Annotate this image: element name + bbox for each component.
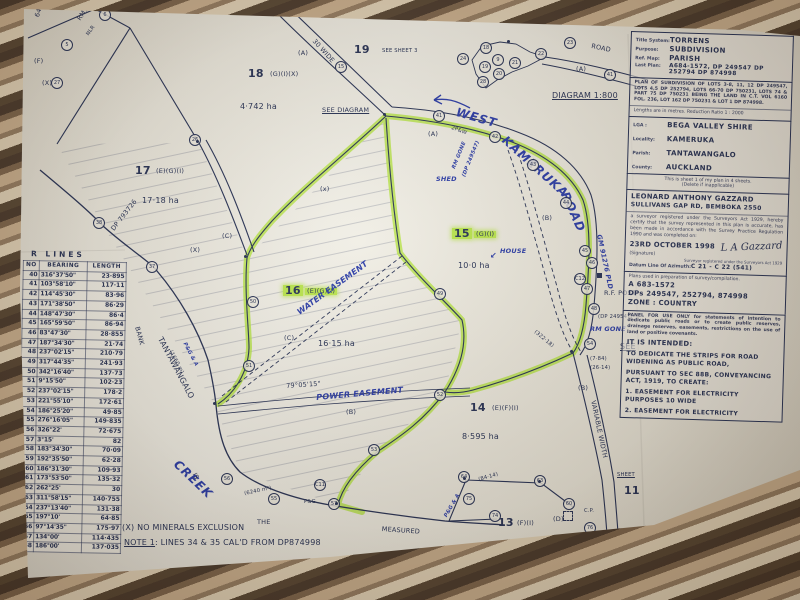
map-label: 30 WIDE [311, 38, 335, 64]
lga-value: BEGA VALLEY SHIRE [667, 121, 753, 132]
power-easement-annotation: POWER EASEMENT [316, 386, 404, 402]
surveyor-panel: LEONARD ANTHONY GAZZARD SULLIVANS GAP RD… [624, 189, 789, 276]
title-block: Title System:TORRENS Purpose:SUBDIVISION… [620, 31, 794, 423]
survey-point-51: 51 [243, 360, 255, 372]
survey-point-18: 18 [480, 42, 492, 54]
intended-4: 2. EASEMENT FOR ELECTRICITY [625, 407, 778, 420]
title-panel: Title System:TORRENS Purpose:SUBDIVISION… [630, 31, 794, 82]
map-label: (7·84) [590, 357, 607, 362]
map-label: RM GONE [590, 326, 626, 333]
survey-point-41: 41 [433, 110, 445, 122]
plan-description-panel: PLAN OF SUBDIVISION OF LOTS 3-8, 11, 12 … [628, 77, 792, 120]
junction-dot [570, 350, 573, 353]
table-row: 68186°00'137·035 [17, 542, 120, 554]
survey-point-26: 26 [189, 134, 201, 146]
map-label: : LINES 34 & 35 CAL'D FROM DP874998 [155, 539, 321, 547]
map-label: (G)(I) [474, 231, 496, 238]
survey-point-50: 50 [247, 296, 259, 308]
map-label: (x) [320, 186, 330, 193]
map-label: RM1 [76, 6, 90, 22]
map-label: BANK [134, 326, 145, 346]
map-label: P&G & A [444, 493, 462, 518]
house-annotation: HOUSE [500, 248, 526, 255]
survey-lines-table: R LINES NO BEARING LENGTH 40316°37'50"23… [17, 249, 127, 554]
ref-map-value: PARISH [669, 54, 700, 63]
photo-of-survey-plan: 6449RM1NLR(F)(X)19SEE SHEET 318(G)(I)(X)… [0, 0, 800, 600]
survey-point-54: 54 [584, 338, 596, 350]
map-label: DP 793726 [110, 198, 138, 232]
map-label: (A) [428, 131, 438, 138]
survey-point-23: 23 [564, 37, 576, 49]
survey-point-74: 74 [489, 510, 501, 522]
junction-dot [196, 140, 199, 143]
survey-point-5: 5 [61, 39, 73, 51]
map-label: ROAD [591, 43, 612, 53]
survey-point-24: 24 [457, 53, 469, 65]
survey-point-27: 27 [51, 77, 63, 89]
map-label: THE [257, 519, 271, 526]
survey-point-43: 43 [527, 159, 539, 171]
map-label: GM 91276 PLD [596, 234, 614, 290]
certification-text: a surveyor registered under the Surveyor… [630, 214, 784, 241]
map-label: (E)(F)(I) [492, 405, 519, 412]
survey-point-19: 19 [479, 61, 491, 73]
survey-point-15: 15 [335, 61, 347, 73]
map-label: 79°05'15" [286, 381, 321, 390]
survey-point-60: 60 [563, 498, 575, 510]
survey-point-75: 75 [463, 493, 475, 505]
intentions-panel: PANEL FOR USE ONLY for statements of int… [620, 309, 786, 423]
junction-dot [335, 502, 338, 505]
survey-point-37: 37 [146, 261, 158, 273]
field-label: Purpose: [635, 47, 669, 53]
lot-17-label: 17 [135, 165, 151, 176]
lot-17-area: 17·18 ha [142, 197, 179, 205]
parish-value: TANTAWANGALO [666, 149, 736, 159]
survey-point-9: 9 [492, 54, 504, 66]
survey-point-28: 28 [477, 76, 489, 88]
map-label: ↙ [490, 252, 497, 260]
last-plan-value: A684-1572, DP 249547 DP 252794 DP 874998 [669, 63, 788, 79]
junction-dot [463, 477, 466, 480]
field-label: Title System: [636, 38, 670, 44]
survey-point-6: 6 [99, 9, 111, 21]
survey-point-49: 49 [434, 288, 446, 300]
junction-dot [538, 480, 541, 483]
survey-point-48: 48 [588, 303, 600, 315]
survey-point-76: 76 [584, 522, 596, 534]
map-label: (C) [284, 335, 294, 342]
sheet-11-label: 11 [624, 485, 640, 496]
survey-point-22: 22 [535, 48, 547, 60]
panel-note: PANEL FOR USE ONLY for statements of int… [627, 313, 781, 340]
field-label: Last Plan: [635, 63, 669, 69]
surveyor-signature: L A Gazzard [721, 241, 783, 254]
map-label: (B) [578, 385, 588, 392]
map-label: ENING [0, 196, 8, 219]
lot-16-area: 16·15 ha [318, 340, 355, 348]
admin-panel: LGA :BEGA VALLEY SHIRE Locality:KAMERUKA… [627, 116, 792, 178]
county-value: AUCKLAND [666, 163, 712, 172]
field-label: LGA : [633, 123, 667, 129]
survey-point-53: 53 [368, 444, 380, 456]
road-width-note: VARIABLE WIDTH [590, 400, 609, 459]
note-1: NOTE 1 [124, 539, 155, 547]
map-label: P&G & A [181, 342, 198, 368]
survey-point-52: 52 [434, 389, 446, 401]
field-label: Parish: [632, 151, 666, 157]
lot-16-label: 16 [283, 285, 303, 296]
datum-label: Datum Line Of Azimuth: [629, 263, 691, 270]
purpose-value: SUBDIVISION [669, 45, 726, 55]
minerals-note: (X) NO MINERALS EXCLUSION [122, 524, 244, 532]
survey-point-45: 45 [579, 245, 591, 257]
map-label: (F) [34, 58, 43, 65]
survey-point-42: 42 [489, 131, 501, 143]
map-label: (X) [190, 247, 200, 254]
survey-point-44: 44 [560, 197, 572, 209]
survey-point-20: 20 [493, 68, 505, 80]
survey-point-C11: C11 [314, 479, 326, 491]
survey-point-47: 47 [581, 283, 593, 295]
datum-value: C 21 - C 22 (541) [691, 264, 752, 272]
plan-sheet: 6449RM1NLR(F)(X)19SEE SHEET 318(G)(I)(X)… [0, 0, 800, 600]
inset-diagram-title: DIAGRAM 1:800 [552, 92, 618, 100]
map-label: (E)(G)(I) [156, 168, 184, 175]
junction-dot [507, 40, 510, 43]
junction-dot [244, 255, 247, 258]
intended-2: PURSUANT TO SEC 88B, CONVEYANCING ACT, 1… [625, 369, 778, 390]
map-label: (C) [222, 233, 232, 240]
map-label: (B) [542, 215, 552, 222]
map-label: 6449 [34, 0, 46, 18]
map-label: RM GONE [586, 538, 619, 545]
plans-used-panel: Plans used in preparation of survey/comp… [623, 271, 787, 314]
title-system-value: TORRENS [670, 36, 710, 45]
map-label: P&G [304, 500, 316, 505]
survey-point-55: 55 [268, 493, 280, 505]
field-label: Ref. Map: [635, 56, 669, 62]
lot-15-label: 15 [452, 228, 472, 239]
monument-mark [563, 511, 573, 521]
lot-18-area: 4·742 ha [240, 103, 277, 111]
survey-point-38: 38 [93, 217, 105, 229]
map-label: NLR [86, 25, 97, 37]
map-label: (26·14) [590, 366, 610, 371]
map-label: SHED [436, 176, 457, 183]
map-label: (A) [576, 66, 586, 73]
field-label: County: [632, 165, 666, 171]
survey-point-41: 41 [604, 69, 616, 81]
lot-14-label: 14 [470, 402, 486, 413]
map-label: (A) [298, 50, 308, 57]
field-label: Locality: [633, 137, 667, 143]
map-label: 2P&W [450, 126, 467, 137]
lot-19-label: 19 [354, 44, 370, 55]
map-label: C.P. [584, 509, 594, 514]
map-label: MEASURED [382, 526, 421, 535]
lot-15-area: 10·0 ha [458, 262, 490, 270]
intended-3: 1. EASEMENT FOR ELECTRICITY PURPOSES 10 … [625, 388, 778, 409]
map-label: SHEET [617, 473, 635, 478]
survey-point-46: 46 [586, 257, 598, 269]
map-label: (F)(I) [517, 520, 534, 527]
lot-18-label: 18 [248, 68, 264, 79]
map-label: (B) [346, 409, 356, 416]
map-label: (84·14) [478, 472, 499, 483]
junction-dot [383, 113, 386, 116]
monument-mark [597, 273, 602, 278]
survey-point-57: 57 [328, 498, 340, 510]
locality-value: KAMERUKA [667, 135, 715, 144]
lines-table-title: R LINES [31, 249, 127, 260]
lot-14-area: 8·595 ha [462, 433, 499, 441]
intended-1: TO DEDICATE THE STRIPS FOR ROAD WIDENING… [626, 350, 779, 371]
map-label: SEE DIAGRAM [322, 107, 369, 114]
plan-description: PLAN OF SUBDIVISION OF LOTS 3-8, 11, 12 … [634, 80, 788, 107]
map-label: SEE SHEET 3 [382, 49, 418, 54]
junction-dot [213, 402, 216, 405]
survey-point-56: 56 [221, 473, 233, 485]
survey-point-21: 21 [509, 57, 521, 69]
map-label: (G)(I)(X) [270, 71, 298, 78]
map-label: (322·18) [533, 330, 555, 349]
road-name-west: WEST [455, 106, 499, 129]
